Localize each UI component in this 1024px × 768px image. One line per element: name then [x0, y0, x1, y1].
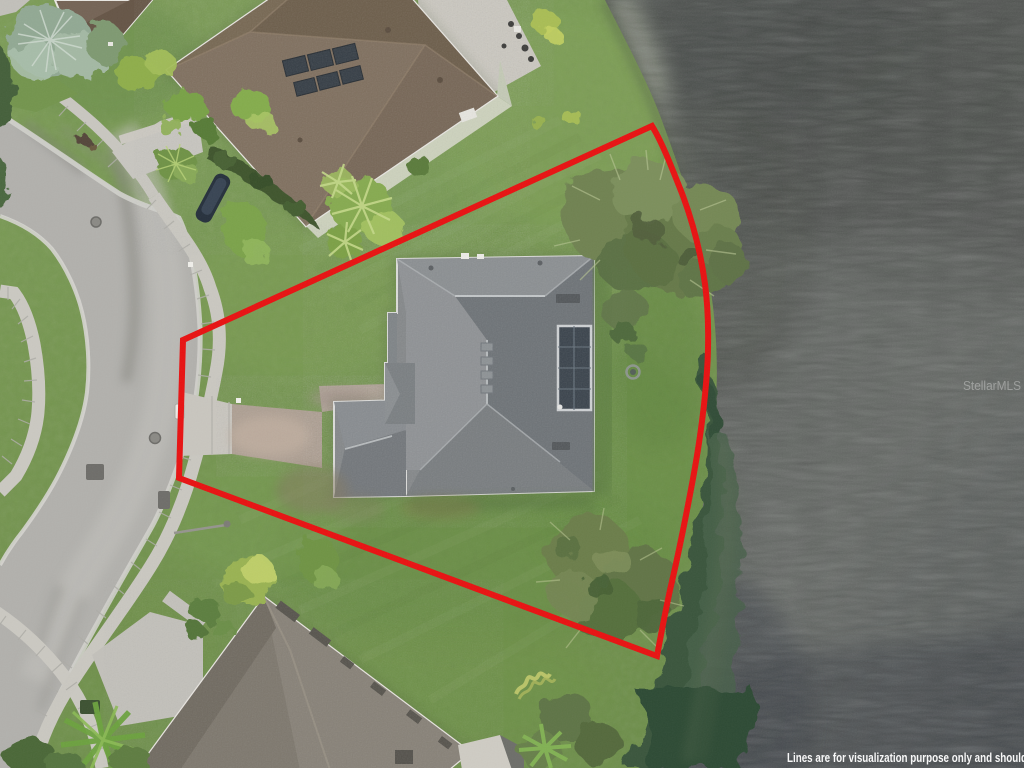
svg-text:Lines are for visualization pu: Lines are for visualization purpose only… — [787, 751, 1024, 765]
svg-text:StellarMLS: StellarMLS — [963, 378, 1021, 393]
